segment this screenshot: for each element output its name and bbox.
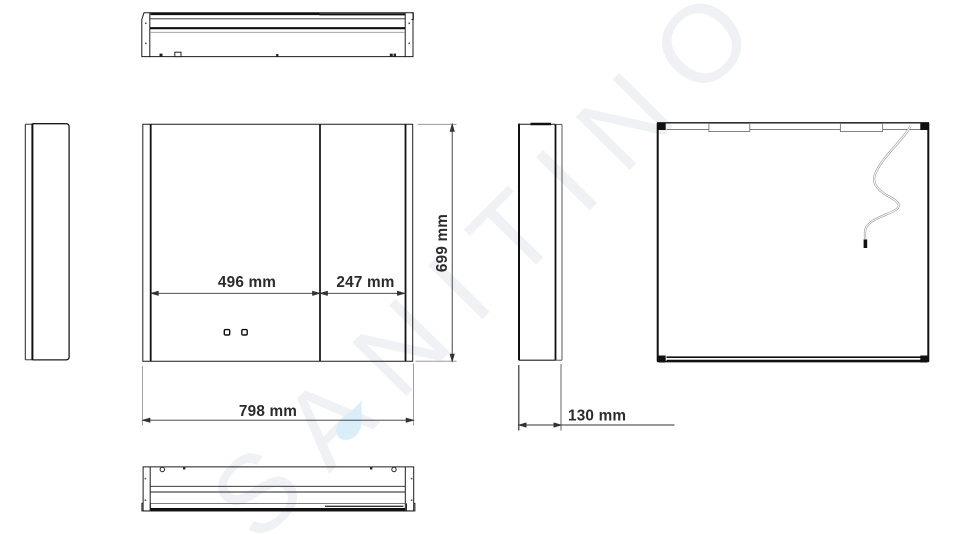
- svg-text:699 mm: 699 mm: [434, 214, 451, 272]
- svg-text:130 mm: 130 mm: [568, 408, 626, 425]
- svg-text:496 mm: 496 mm: [218, 274, 276, 291]
- svg-text:247 mm: 247 mm: [336, 274, 394, 291]
- svg-text:798 mm: 798 mm: [239, 403, 297, 420]
